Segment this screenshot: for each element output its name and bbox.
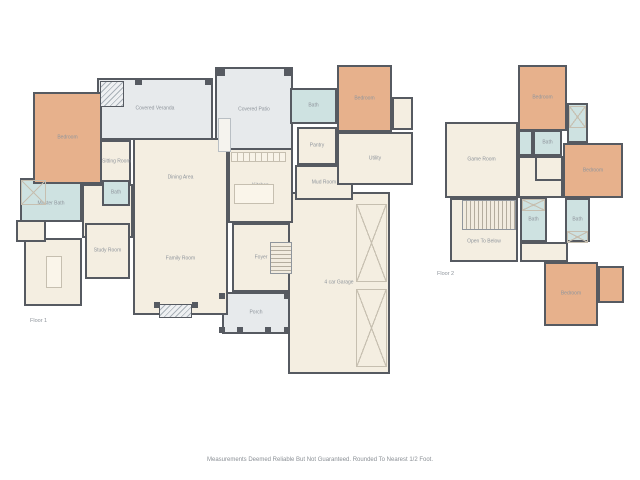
room-bedroom-4-nook: [598, 266, 624, 303]
room-great-room: Dining AreaFamily Room: [133, 138, 228, 315]
room-label: Bedroom: [339, 96, 390, 102]
room-label: Bedroom: [546, 291, 596, 297]
floor-label: Floor 1: [30, 318, 47, 324]
room-label: Bath: [535, 140, 560, 146]
porch-post: [237, 327, 243, 333]
room-label: Bath: [104, 190, 128, 196]
room-study-room: Study Room: [85, 223, 130, 279]
outdoor-kitchen: [218, 118, 231, 152]
room-corridor: [520, 242, 568, 262]
disclaimer-text: Measurements Deemed Reliable But Not Gua…: [0, 457, 640, 463]
room-bedroom-3: Bedroom: [563, 143, 623, 198]
room-label: Open To Below: [452, 239, 516, 245]
upper-stairs: [462, 200, 516, 230]
room-water-closet: [16, 220, 46, 242]
room-game-room: Game Room: [445, 122, 518, 198]
family-fireplace: [159, 304, 192, 318]
closet-x: [569, 106, 586, 128]
floor-label: Floor 2: [437, 271, 454, 277]
veranda-fireplace: [100, 81, 124, 107]
room-label: Bedroom: [35, 135, 100, 141]
room-label: Bedroom: [565, 168, 621, 174]
room-bath-jack: Bath: [533, 130, 562, 156]
room-label: Utility: [339, 156, 411, 162]
room-bedroom-4: Bedroom: [544, 262, 598, 326]
room-utility: Utility: [337, 132, 413, 185]
room-bedroom-closet: [392, 97, 413, 130]
room-label: Covered Patio: [217, 107, 291, 113]
kitchen-island: [234, 184, 274, 204]
room-label: Sitting Room: [102, 159, 129, 165]
room-label: Dining Area: [135, 175, 226, 181]
room-label: Porch: [224, 310, 288, 316]
room-label: Game Room: [447, 157, 516, 163]
porch-post: [284, 293, 290, 299]
room-label: Study Room: [87, 248, 128, 254]
garage-door: [356, 204, 387, 282]
room-toilet-cell: [518, 130, 533, 156]
patio-post: [284, 67, 293, 76]
closet-x: [567, 231, 588, 243]
room-label: Bath: [522, 217, 545, 223]
fireplace-post: [192, 302, 198, 308]
kitchen-counter: [231, 152, 286, 162]
veranda-post: [135, 78, 142, 85]
room-label: Covered Veranda: [99, 106, 211, 112]
room-linen-hall: [535, 156, 563, 181]
room-label: Pantry: [299, 143, 335, 149]
room-bedroom-2: Bedroom: [518, 65, 567, 131]
room-pantry: Pantry: [297, 127, 337, 165]
room-label: Family Room: [135, 257, 226, 263]
master-shower: [21, 180, 46, 205]
porch-post: [219, 293, 225, 299]
garage-door: [356, 289, 387, 367]
room-bedroom-master: Bedroom: [33, 92, 102, 184]
room-label: Bedroom: [520, 95, 565, 101]
foyer-stairs: [270, 242, 292, 274]
porch-post: [284, 327, 290, 333]
room-sitting-room: Sitting Room: [100, 140, 131, 184]
veranda-post: [205, 78, 212, 85]
porch-post: [265, 327, 271, 333]
floorplan-image: Covered VerandaCovered PatioPorch4 car G…: [0, 0, 640, 480]
patio-post: [216, 67, 225, 76]
room-porch: Porch: [222, 292, 290, 334]
hobby-island: [46, 256, 62, 288]
room-label: Bath: [292, 103, 335, 109]
porch-post: [219, 327, 225, 333]
fireplace-post: [154, 302, 160, 308]
room-bath-hall: Bath: [102, 180, 130, 206]
room-bedroom-guest: Bedroom: [337, 65, 392, 132]
closet-x: [522, 199, 545, 211]
room-label: Bath: [567, 217, 588, 223]
room-bath-guest: Bath: [290, 88, 337, 124]
